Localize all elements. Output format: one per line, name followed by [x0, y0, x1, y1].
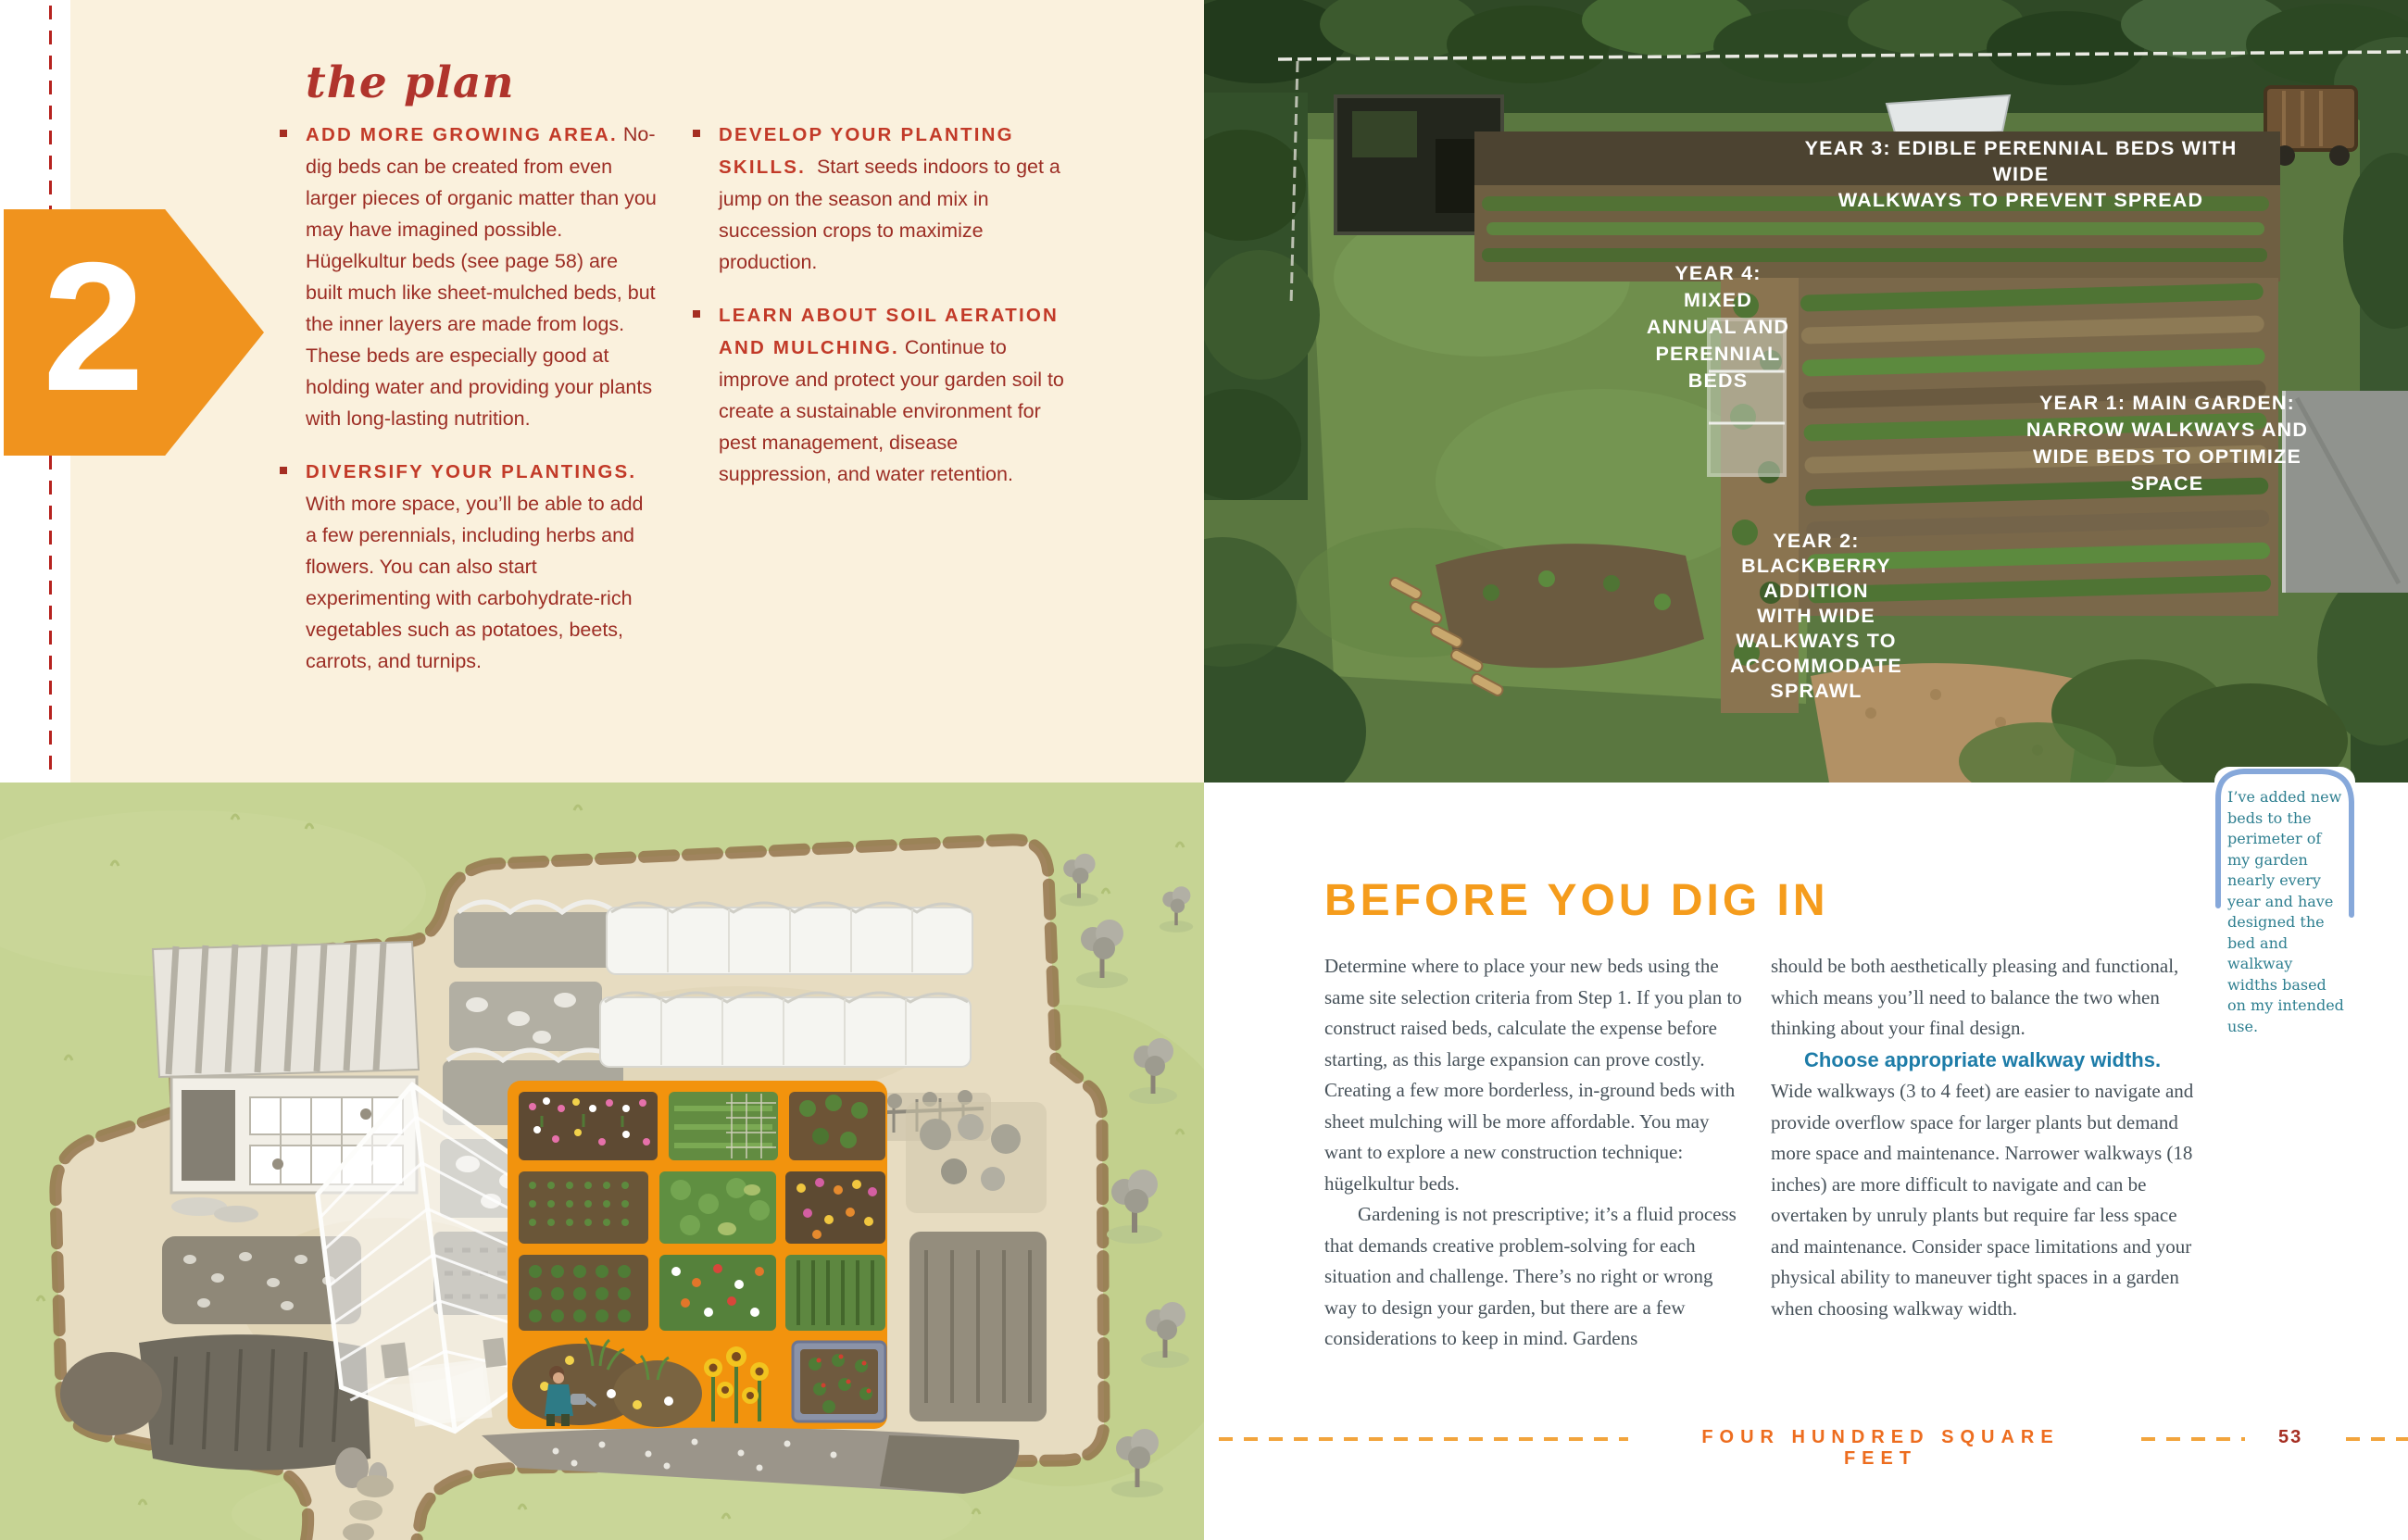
step-number: 2	[43, 235, 144, 419]
paragraph: Gardening is not prescriptive; it’s a fl…	[1324, 1199, 1743, 1355]
footer-title: FOUR HUNDRED SQUARE FEET	[1674, 1427, 2087, 1470]
garden-aerial-photo: YEAR 3: EDIBLE PERENNIAL BEDS WITH WIDEW…	[1204, 0, 2408, 783]
photo-label-year-2: YEAR 2:BLACKBERRYADDITIONWITH WIDEWALKWA…	[1710, 529, 1923, 704]
plan-column-1: ADD MORE GROWING AREA. No-dig beds can b…	[278, 119, 658, 698]
footer-rule	[2141, 1437, 2245, 1441]
plan-column-2: DEVELOP YOUR PLANTING SKILLS. Start seed…	[691, 119, 1071, 511]
bullet-head: ADD MORE GROWING AREA.	[306, 124, 618, 145]
bullet-item: LEARN ABOUT SOIL AERATION AND MULCHING. …	[691, 299, 1071, 490]
bullet-item: DEVELOP YOUR PLANTING SKILLS. Start seed…	[691, 119, 1071, 278]
page-footer: FOUR HUNDRED SQUARE FEET 53	[1204, 1425, 2408, 1457]
margin-note-text: I’ve added new beds to the perimeter of …	[2227, 787, 2345, 1037]
bullet-head: LEARN ABOUT SOIL AERATION AND MULCHING.	[719, 305, 1059, 358]
page-number: 53	[2278, 1427, 2302, 1448]
photo-label-year-1: YEAR 1: MAIN GARDEN:NARROW WALKWAYS ANDW…	[2017, 390, 2317, 497]
article-column-2: should be both aesthetically pleasing an…	[1771, 951, 2195, 1324]
bullet-body: No-dig beds can be created from even lar…	[306, 123, 657, 430]
footer-rule	[2346, 1437, 2408, 1441]
paragraph: should be both aesthetically pleasing an…	[1771, 951, 2195, 1045]
section-heading: the plan	[306, 57, 515, 108]
article-column-1: Determine where to place your new beds u…	[1324, 951, 1743, 1355]
footer-rule	[1219, 1437, 1628, 1441]
paragraph-continuation: Wide walkways (3 to 4 feet) are easier t…	[1771, 1080, 2193, 1320]
article-heading: BEFORE YOU DIG IN	[1324, 875, 1829, 926]
bullet-item: ADD MORE GROWING AREA. No-dig beds can b…	[278, 119, 658, 434]
photo-label-year-3: YEAR 3: EDIBLE PERENNIAL BEDS WITH WIDEW…	[1778, 135, 2264, 213]
garden-illustration	[0, 783, 1204, 1540]
book-spread: 2 the plan ADD MORE GROWING AREA. No-dig…	[0, 0, 2408, 1540]
margin-note: I’ve added new beds to the perimeter of …	[2214, 767, 2355, 1000]
paragraph: Determine where to place your new beds u…	[1324, 951, 1743, 1199]
bullet-body: Continue to improve and protect your gar…	[719, 336, 1064, 485]
bullet-item: DIVERSIFY YOUR PLANTINGS. With more spac…	[278, 456, 658, 677]
walkway-lead: Choose appropriate walkway widths.	[1804, 1048, 2161, 1071]
photo-label-year-4: YEAR 4:MIXEDANNUAL ANDPERENNIALBEDS	[1602, 260, 1834, 394]
bullet-head: DIVERSIFY YOUR PLANTINGS.	[306, 461, 636, 482]
garden-map-graphic	[0, 783, 1204, 1540]
bullet-body: With more space, you’ll be able to add a…	[306, 493, 644, 672]
paragraph: Choose appropriate walkway widths. Wide …	[1771, 1045, 2195, 1325]
